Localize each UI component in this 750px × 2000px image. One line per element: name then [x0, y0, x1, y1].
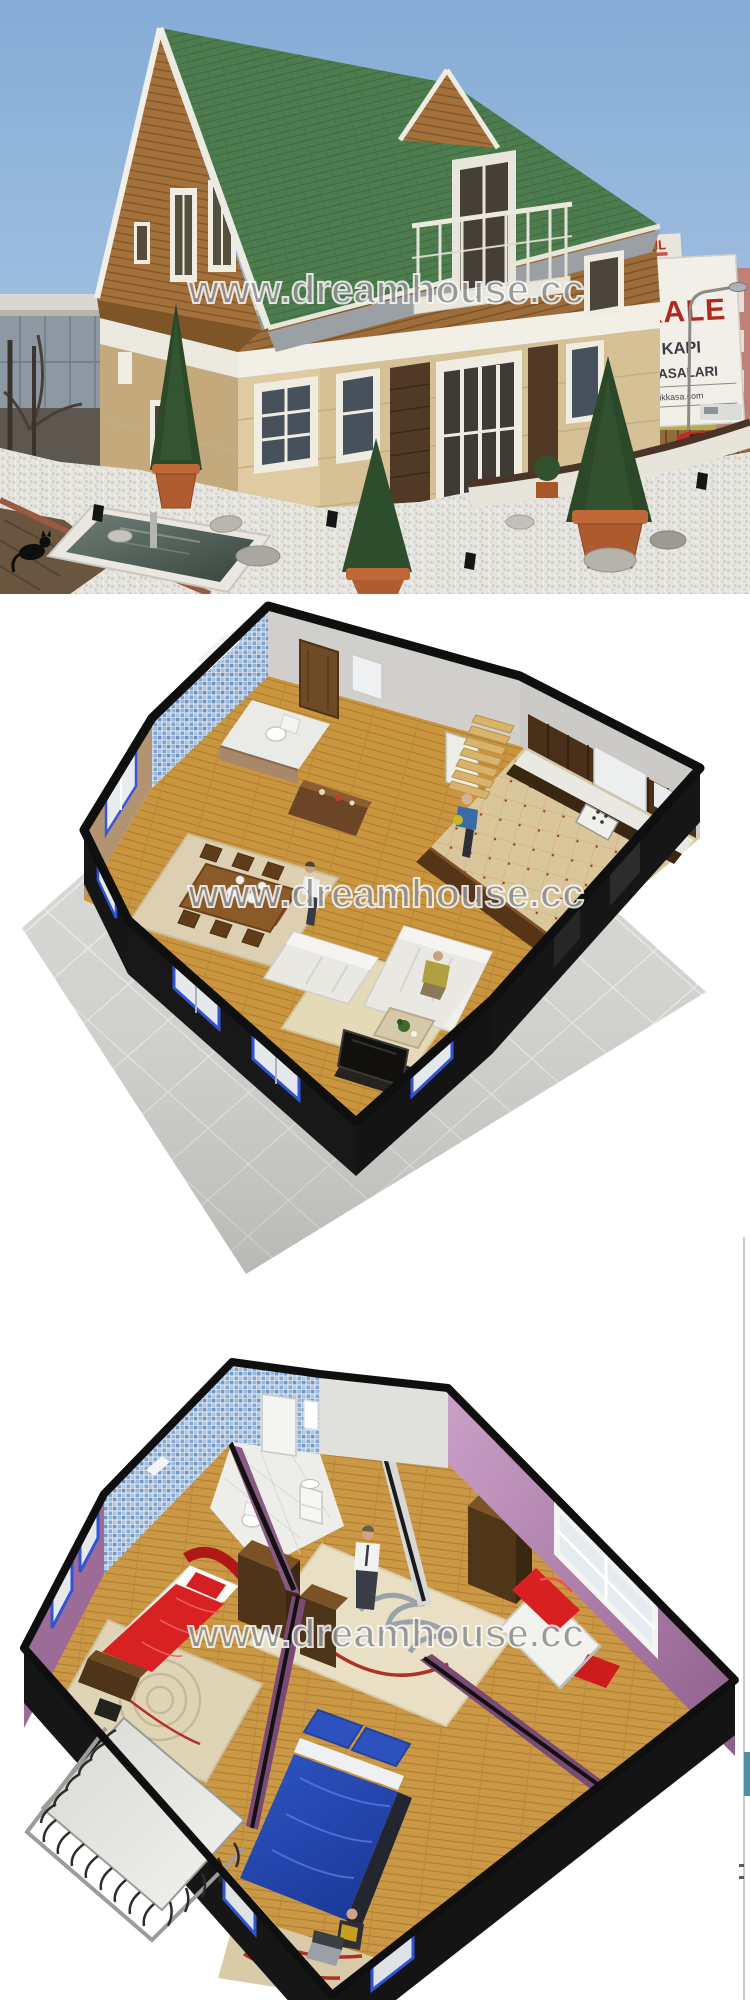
page: ERDİL KALE ÇELİK KAPI PARA KASALARI www.…: [0, 0, 750, 2000]
upper-window-right: [584, 250, 624, 318]
watermark-ground-floor: www.dreamhouse.cc: [188, 872, 584, 917]
upper-floor-plan: [0, 1358, 750, 2000]
page-edge-mark: [739, 1864, 744, 1867]
watermark-exterior: www.dreamhouse.cc: [188, 268, 584, 313]
entry-door: [300, 640, 338, 718]
watermark-upper-floor: www.dreamhouse.cc: [188, 1612, 584, 1657]
page-edge-mark: [739, 1876, 744, 1879]
page-edge-teal-fragment: [744, 1752, 750, 1796]
bathroom-mirror: [304, 1400, 318, 1430]
bathroom-door: [262, 1394, 296, 1456]
path-light: [150, 510, 157, 548]
page-edge-line: [743, 1237, 745, 2000]
ground-floor-plan: [0, 596, 750, 1296]
